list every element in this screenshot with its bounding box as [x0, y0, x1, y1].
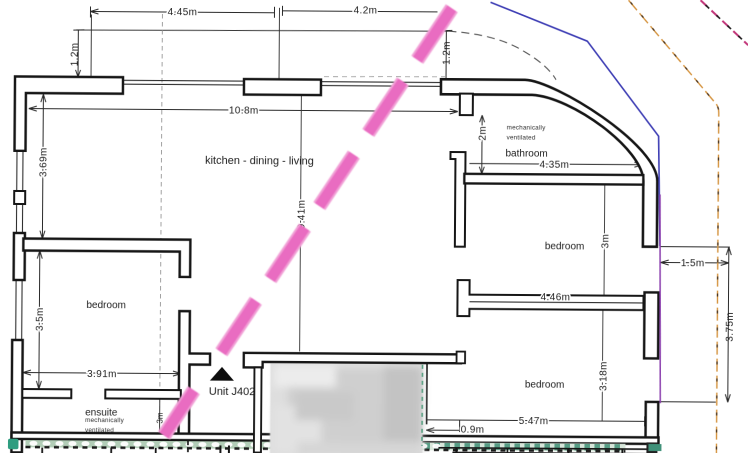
svg-text:mechanically: mechanically [507, 124, 546, 131]
svg-text:4.2m: 4.2m [354, 5, 378, 16]
svg-text:ventilated: ventilated [85, 427, 114, 434]
svg-text:10.8m: 10.8m [229, 105, 259, 116]
svg-text:3m: 3m [600, 234, 611, 249]
svg-text:mechanically: mechanically [85, 417, 124, 424]
svg-text:bedroom: bedroom [525, 380, 565, 391]
svg-text:kitchen - dining - living: kitchen - dining - living [205, 155, 314, 168]
svg-text:4.46m: 4.46m [541, 292, 571, 303]
svg-text:1.2m: 1.2m [70, 42, 81, 66]
svg-text:bathroom: bathroom [505, 148, 547, 159]
svg-text:3.91m: 3.91m [87, 369, 117, 380]
svg-text:3.18m: 3.18m [598, 361, 609, 391]
svg-text:1.2m: 1.2m [442, 41, 453, 65]
svg-text:3m: 3m [156, 412, 165, 424]
svg-text:3.69m: 3.69m [38, 147, 49, 177]
svg-text:0.9m: 0.9m [461, 425, 485, 436]
svg-text:Unit J402: Unit J402 [209, 386, 256, 398]
svg-text:1.5m: 1.5m [681, 258, 705, 269]
svg-text:4.35m: 4.35m [539, 160, 569, 171]
svg-text:3.75m: 3.75m [725, 312, 736, 342]
svg-text:bedroom: bedroom [86, 300, 126, 311]
svg-text:bedroom: bedroom [545, 241, 585, 252]
svg-text:3.5m: 3.5m [35, 307, 46, 331]
svg-text:5.47m: 5.47m [519, 416, 549, 427]
svg-text:ventilated: ventilated [507, 134, 536, 141]
svg-text:2m: 2m [478, 126, 489, 141]
svg-text:4.45m: 4.45m [168, 7, 198, 18]
